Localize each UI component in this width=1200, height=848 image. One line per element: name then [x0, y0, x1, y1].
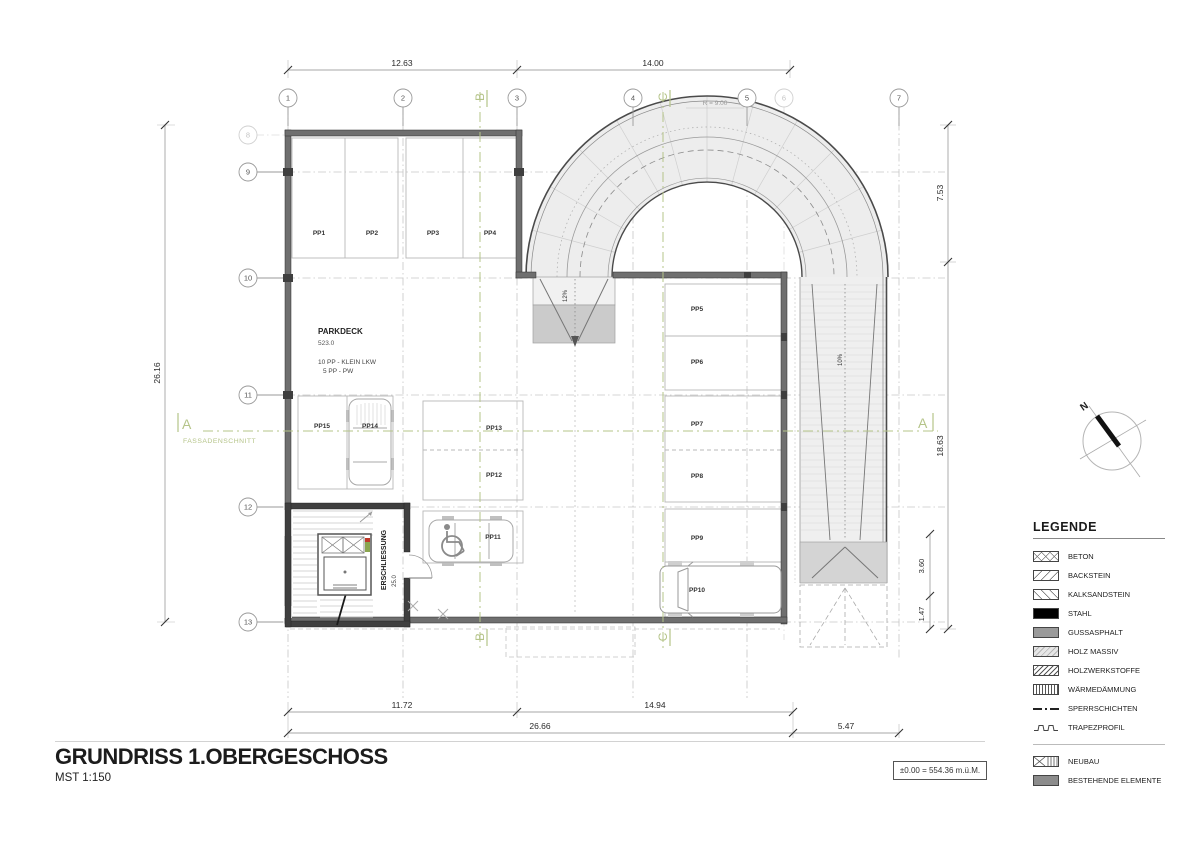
ramp-slope-side-label: 10% — [838, 353, 844, 366]
van-on-pp10 — [660, 561, 781, 617]
legend-label: BACKSTEIN — [1068, 571, 1111, 580]
ramp-entry-funnel: 12% — [533, 277, 615, 347]
legend-item-beton: BETON — [1033, 547, 1165, 566]
bestehende-elemente-swatch-icon — [1033, 775, 1059, 786]
parkdeck-info1: 10 PP - KLEIN LKW — [318, 359, 377, 366]
legend-item-backstein: BACKSTEIN — [1033, 566, 1165, 585]
section-c-bottom-label: C — [656, 632, 670, 641]
stall-pp9: PP9 — [691, 535, 704, 542]
axis-bubble-5: 5 — [745, 94, 749, 103]
legend-item-kalksandstein: KALKSANDSTEIN — [1033, 585, 1165, 604]
trapezprofil-swatch-icon — [1033, 722, 1059, 733]
stall-pp10: PP10 — [689, 587, 705, 594]
scale-label: MST 1:150 — [55, 772, 388, 784]
legend-label: GUSSASPHALT — [1068, 628, 1123, 637]
dim-bottom-3: 26.66 — [529, 721, 551, 731]
curved-ramp: R = 9.00 — [526, 96, 888, 277]
axis-bubble-3: 3 — [515, 94, 519, 103]
elevator — [318, 534, 371, 595]
legend-item-stahl: STAHL — [1033, 604, 1165, 623]
north-needle — [1097, 416, 1119, 446]
axis-bubble-10: 10 — [244, 274, 252, 283]
axis-bubble-9: 9 — [246, 168, 250, 177]
legend-label: WÄRMEDÄMMUNG — [1068, 685, 1136, 694]
beton-swatch-icon — [1033, 551, 1059, 562]
elevation-reference-box: ±0.00 = 554.36 m.ü.M. — [893, 761, 987, 780]
section-b-bottom-label: B — [473, 633, 487, 641]
page-title: GRUNDRISS 1.OBERGESCHOSS — [55, 744, 388, 770]
parkdeck-level: 523.0 — [318, 340, 335, 347]
stall-pp5: PP5 — [691, 306, 704, 313]
stahl-swatch-icon — [1033, 608, 1059, 619]
car-on-pp14 — [346, 399, 394, 485]
section-a-left-label: A — [182, 416, 192, 432]
existing-below-dashed-outline — [800, 585, 887, 647]
stall-pp15: PP15 — [314, 423, 330, 430]
holz-massiv-swatch-icon — [1033, 646, 1059, 657]
floor-cross-marks — [408, 601, 448, 619]
stall-pp2: PP2 — [366, 230, 379, 237]
kalksandstein-swatch-icon — [1033, 589, 1059, 600]
neubau-swatch-icon — [1033, 756, 1059, 767]
legend-item-holz-massiv: HOLZ MASSIV — [1033, 642, 1165, 661]
dim-right-1: 7.53 — [935, 184, 945, 201]
axis-bubble-13: 13 — [244, 618, 252, 627]
axis-bubble-4: 4 — [631, 94, 635, 103]
legend-title: LEGENDE — [1033, 520, 1165, 539]
axis-bubble-2: 2 — [401, 94, 405, 103]
section-c-top-label: C — [656, 92, 670, 101]
holzwerkstoffe-swatch-icon — [1033, 665, 1059, 676]
stall-pp14: PP14 — [362, 423, 378, 430]
dim-right-4: 1.47 — [917, 607, 926, 622]
door-swing — [409, 555, 432, 578]
sperrschichten-swatch-icon — [1033, 708, 1059, 710]
legend-label: NEUBAU — [1068, 757, 1099, 766]
legend-label: BESTEHENDE ELEMENTE — [1068, 776, 1161, 785]
grid-bubbles-top: 1 2 3 4 5 6 7 — [279, 89, 908, 126]
stall-pp1: PP1 — [313, 230, 326, 237]
legend-item-neubau: NEUBAU — [1033, 752, 1165, 771]
grid-bubbles-left: 8 9 10 11 12 13 — [239, 126, 283, 631]
axis-bubble-7: 7 — [897, 94, 901, 103]
gussasphalt-swatch-icon — [1033, 627, 1059, 638]
north-arrow: N — [1078, 400, 1146, 477]
straight-ramp-strip: 10% — [795, 277, 887, 647]
parkdeck-info2: 5 PP - PW — [323, 368, 354, 375]
legend-item-holzwerkstoffe: HOLZWERKSTOFFE — [1033, 661, 1165, 680]
stall-pp3: PP3 — [427, 230, 440, 237]
legend-label: HOLZWERKSTOFFE — [1068, 666, 1140, 675]
stall-pp6: PP6 — [691, 359, 704, 366]
section-a-right-label: A — [918, 415, 928, 431]
axis-bubble-6: 6 — [782, 94, 786, 103]
legend-label: SPERRSCHICHTEN — [1068, 704, 1138, 713]
title-separator-line — [55, 741, 985, 742]
section-b-top-label: B — [473, 93, 487, 101]
axis-bubble-11: 11 — [244, 391, 252, 400]
stall-pp4: PP4 — [484, 230, 497, 237]
legend-item-sperrschichten: SPERRSCHICHTEN — [1033, 699, 1165, 718]
legend-label: STAHL — [1068, 609, 1092, 618]
waermedaemmung-swatch-icon — [1033, 684, 1059, 695]
fassadenschnitt-label: FASSADENSCHNITT — [183, 438, 256, 445]
north-label: N — [1078, 400, 1090, 413]
dim-bottom-1: 11.72 — [392, 700, 413, 710]
dim-top-2: 14.00 — [642, 58, 664, 68]
red-mark — [365, 538, 370, 542]
parkdeck-title: PARKDECK — [318, 327, 363, 336]
ramp-slope-entry-label: 12% — [563, 289, 569, 302]
stair-core — [285, 503, 448, 627]
legend-label: BETON — [1068, 552, 1094, 561]
stall-pp13: PP13 — [486, 425, 502, 432]
dim-left: 26.16 — [152, 362, 162, 384]
axis-bubble-1: 1 — [286, 94, 290, 103]
dim-bottom-2: 14.94 — [644, 700, 666, 710]
title-block: GRUNDRISS 1.OBERGESCHOSS MST 1:150 — [55, 744, 388, 784]
ramp-radius-label: R = 9.00 — [703, 100, 728, 107]
legend-divider — [1033, 744, 1165, 745]
legend-item-gussasphalt: GUSSASPHALT — [1033, 623, 1165, 642]
floor-plan-drawing: R = 9.00 12% — [0, 0, 1200, 848]
legend-item-bestehende-elemente: BESTEHENDE ELEMENTE — [1033, 771, 1165, 790]
stall-pp12: PP12 — [486, 472, 502, 479]
stall-pp11: PP11 — [485, 534, 501, 541]
legend-item-waermedaemmung: WÄRMEDÄMMUNG — [1033, 680, 1165, 699]
axis-bubble-8: 8 — [246, 131, 250, 140]
legend-item-trapezprofil: TRAPEZPROFIL — [1033, 718, 1165, 737]
axis-bubble-12: 12 — [244, 503, 252, 512]
dashed-outline-below — [290, 627, 780, 657]
floor-plan-page: { "title_block": { "title": "GRUNDRISS 1… — [0, 0, 1200, 848]
legend-label: TRAPEZPROFIL — [1068, 723, 1125, 732]
dim-right-3: 3.60 — [917, 559, 926, 574]
legend-label: KALKSANDSTEIN — [1068, 590, 1130, 599]
legend: LEGENDE BETON BACKSTEIN KALKSANDSTEIN ST… — [1033, 520, 1165, 790]
stall-pp8: PP8 — [691, 473, 704, 480]
dim-top-1: 12.63 — [391, 58, 413, 68]
backstein-swatch-icon — [1033, 570, 1059, 581]
circulation-area-label: 25.0 — [392, 575, 398, 587]
dim-right-2: 18.63 — [935, 435, 945, 457]
legend-label: HOLZ MASSIV — [1068, 647, 1118, 656]
circulation-label: ERSCHLIESSUNG — [381, 529, 388, 590]
dim-bottom-4: 5.47 — [838, 721, 855, 731]
stall-pp7: PP7 — [691, 421, 704, 428]
car-on-pp11 — [429, 516, 513, 566]
